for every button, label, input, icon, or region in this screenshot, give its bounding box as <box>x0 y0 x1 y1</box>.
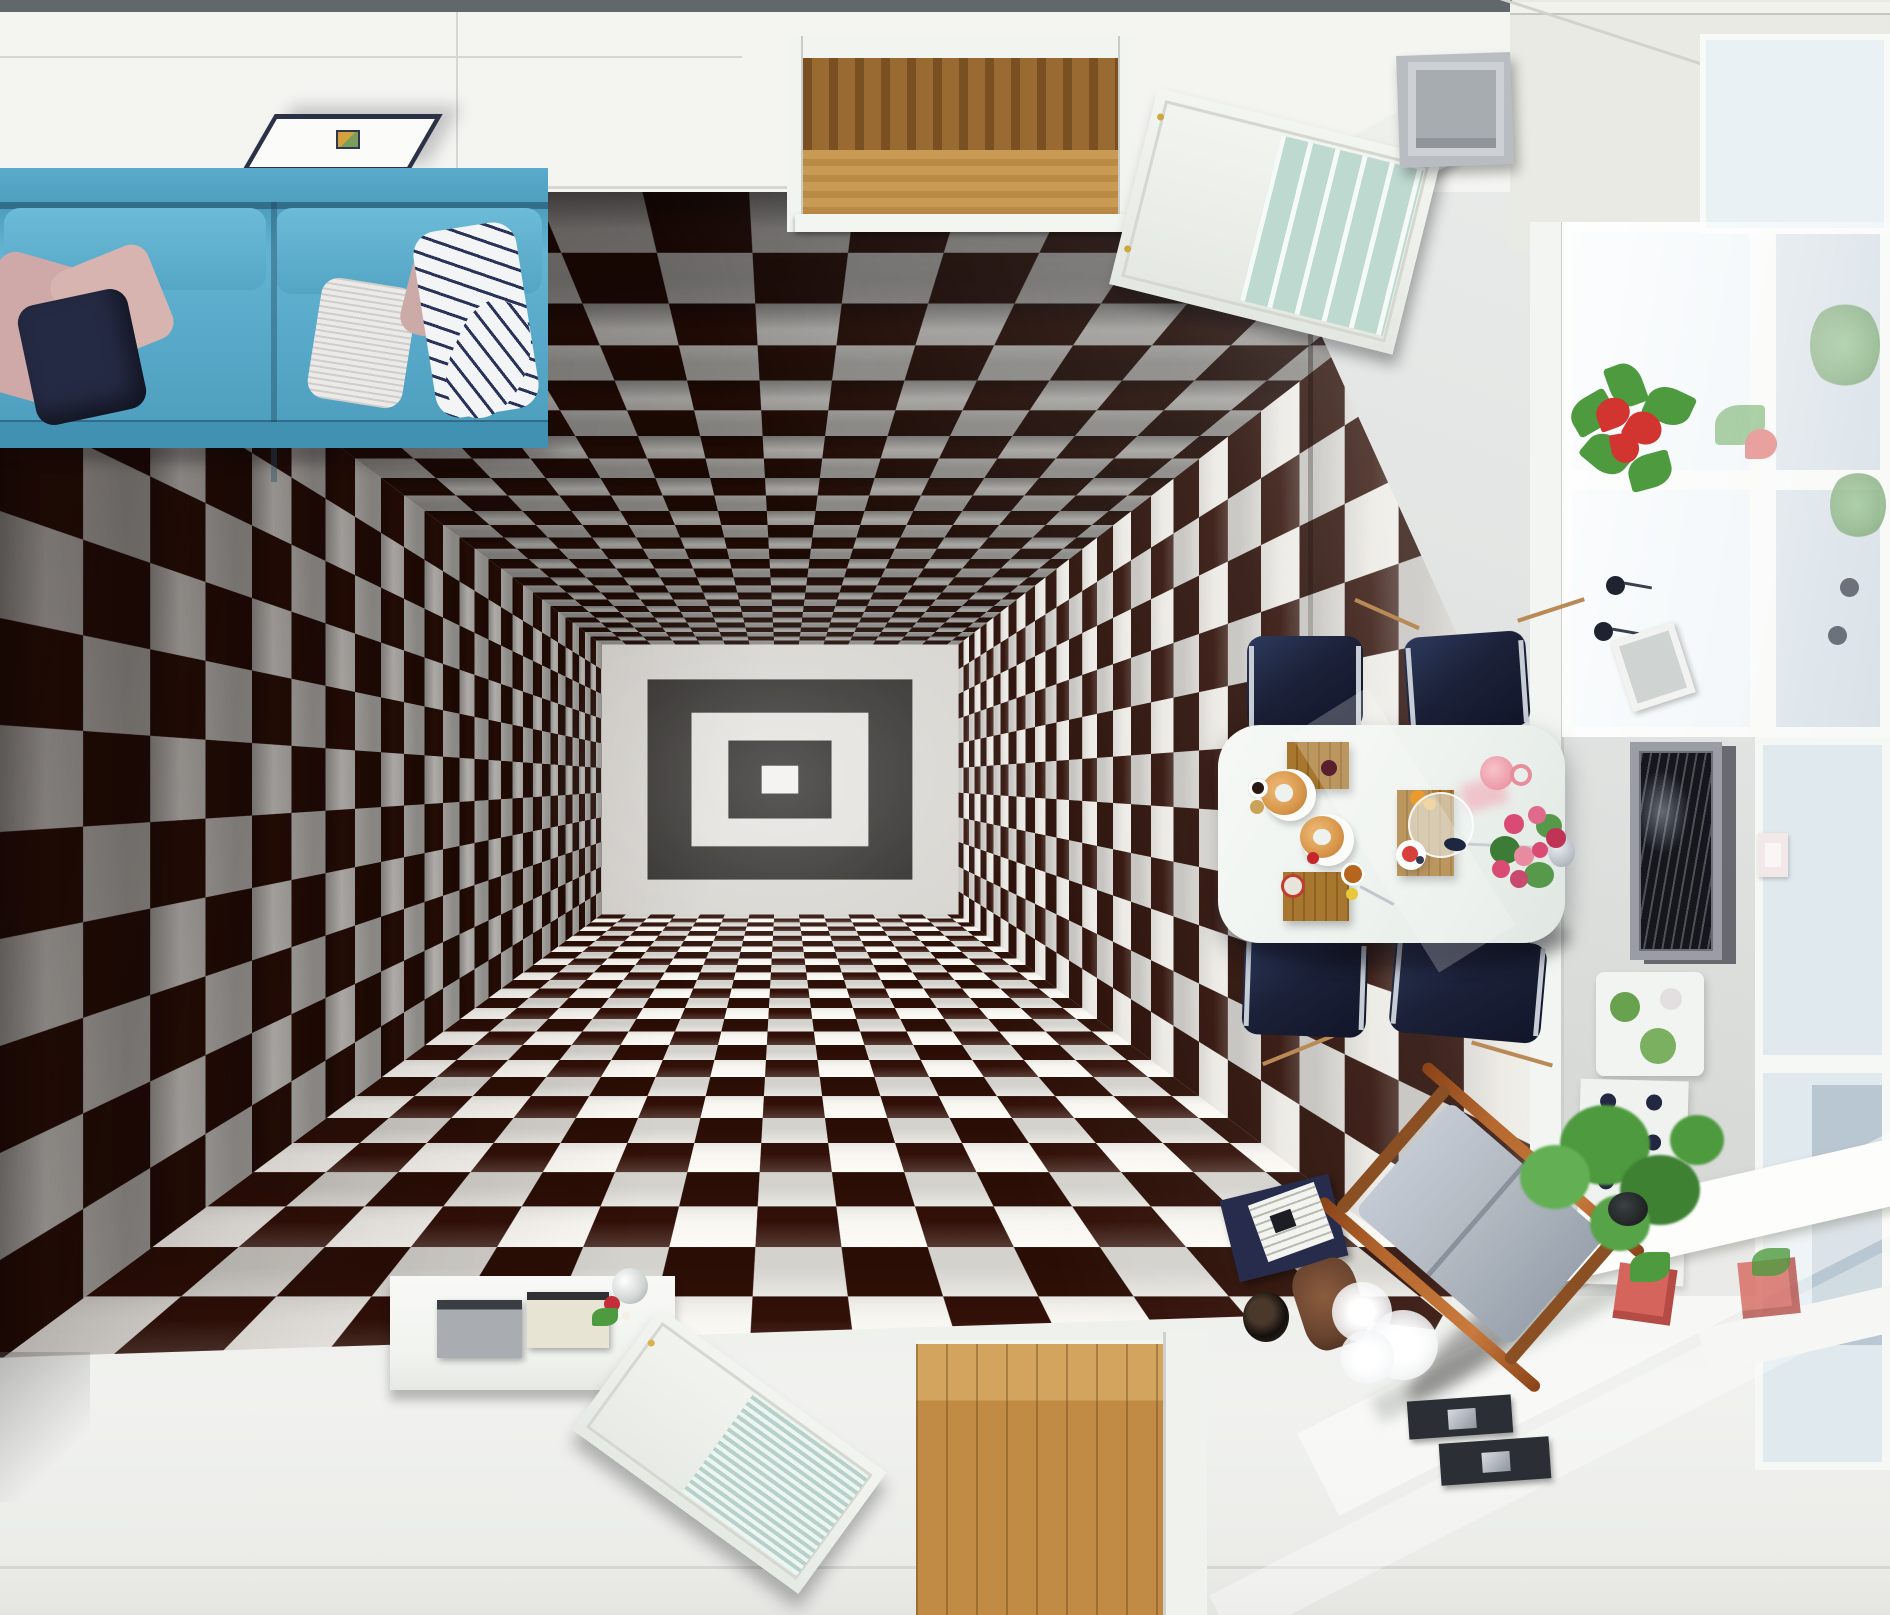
knob-reflection <box>1840 578 1859 597</box>
tunnel-ring <box>762 766 799 794</box>
rose <box>1504 814 1524 834</box>
rose <box>1514 846 1534 866</box>
anthurium-plant <box>1570 368 1692 500</box>
feather-duster <box>1340 1330 1394 1384</box>
rose-bouquet <box>1484 806 1568 892</box>
black-vase <box>1243 1292 1289 1342</box>
corner-window <box>1700 34 1890 234</box>
rose <box>1528 806 1546 824</box>
blueberry <box>1416 856 1424 864</box>
corner-crown-molding <box>1510 2 1890 15</box>
hallway-wood-floor <box>803 150 1118 214</box>
tea-cup <box>1341 862 1365 886</box>
apple-half <box>1281 874 1305 898</box>
crown-molding-line <box>0 56 742 58</box>
corner-shadow <box>0 1352 90 1502</box>
rose <box>1546 828 1566 848</box>
wall-knob <box>1606 576 1625 595</box>
ivy-foliage <box>1520 1145 1590 1209</box>
wood-floor-patch <box>916 1340 1166 1615</box>
flat-tv-panel <box>437 1300 522 1358</box>
door-threshold <box>795 214 1127 232</box>
orchid-bud <box>622 1312 630 1320</box>
espresso-cup <box>1248 778 1268 798</box>
plum <box>1321 760 1337 776</box>
rose <box>1532 842 1548 858</box>
floor-door-jamb <box>1163 1332 1207 1615</box>
planter-plant <box>1752 1248 1790 1276</box>
rose-leaves <box>592 1308 618 1326</box>
lamp-center-art <box>338 132 358 147</box>
pink-pitcher <box>1480 756 1514 790</box>
pitcher-handle <box>1510 764 1532 786</box>
wall-knob <box>1594 622 1613 641</box>
hallway-doorway <box>787 36 1135 232</box>
light-switch <box>1758 833 1788 877</box>
ivy-plant <box>1500 1075 1740 1275</box>
hallway-wood-wall <box>803 58 1118 150</box>
sofa-front-edge <box>0 422 548 448</box>
succulent <box>1640 1028 1676 1064</box>
navy-dining-chair <box>1403 630 1531 734</box>
succulent-shelf <box>1596 972 1704 1076</box>
croissant <box>1261 771 1307 815</box>
dark-coaster-frame <box>1407 1394 1513 1439</box>
rose <box>1492 860 1510 878</box>
top-dark-strip <box>0 0 1512 12</box>
door-jamb-left <box>787 36 803 232</box>
window-mullion <box>1763 1055 1882 1073</box>
knob-reflection <box>1828 626 1847 645</box>
room-overhead-photo <box>0 0 1890 1615</box>
cherry <box>1307 852 1319 864</box>
ivy-pot <box>1608 1192 1648 1226</box>
door-lintel <box>787 36 1135 58</box>
speaker-grille <box>1416 70 1496 148</box>
ivy-foliage <box>1670 1115 1724 1165</box>
ceiling-crease <box>456 12 458 190</box>
rose <box>1510 870 1528 888</box>
cookie <box>1250 800 1264 814</box>
croissant <box>1300 816 1344 858</box>
anthurium-reflection <box>1705 385 1805 495</box>
planter-plant <box>1630 1252 1670 1282</box>
horse-drawing <box>1641 753 1711 949</box>
knit-pillow <box>305 275 419 411</box>
bouquet-leaves <box>1524 862 1554 888</box>
succulent <box>1610 992 1640 1022</box>
framed-artwork <box>1630 742 1722 960</box>
dark-coaster-frame <box>1439 1436 1552 1486</box>
white-pot <box>1660 988 1682 1010</box>
tunnel-deep-end <box>596 640 964 918</box>
lemon-slice <box>1346 888 1358 900</box>
